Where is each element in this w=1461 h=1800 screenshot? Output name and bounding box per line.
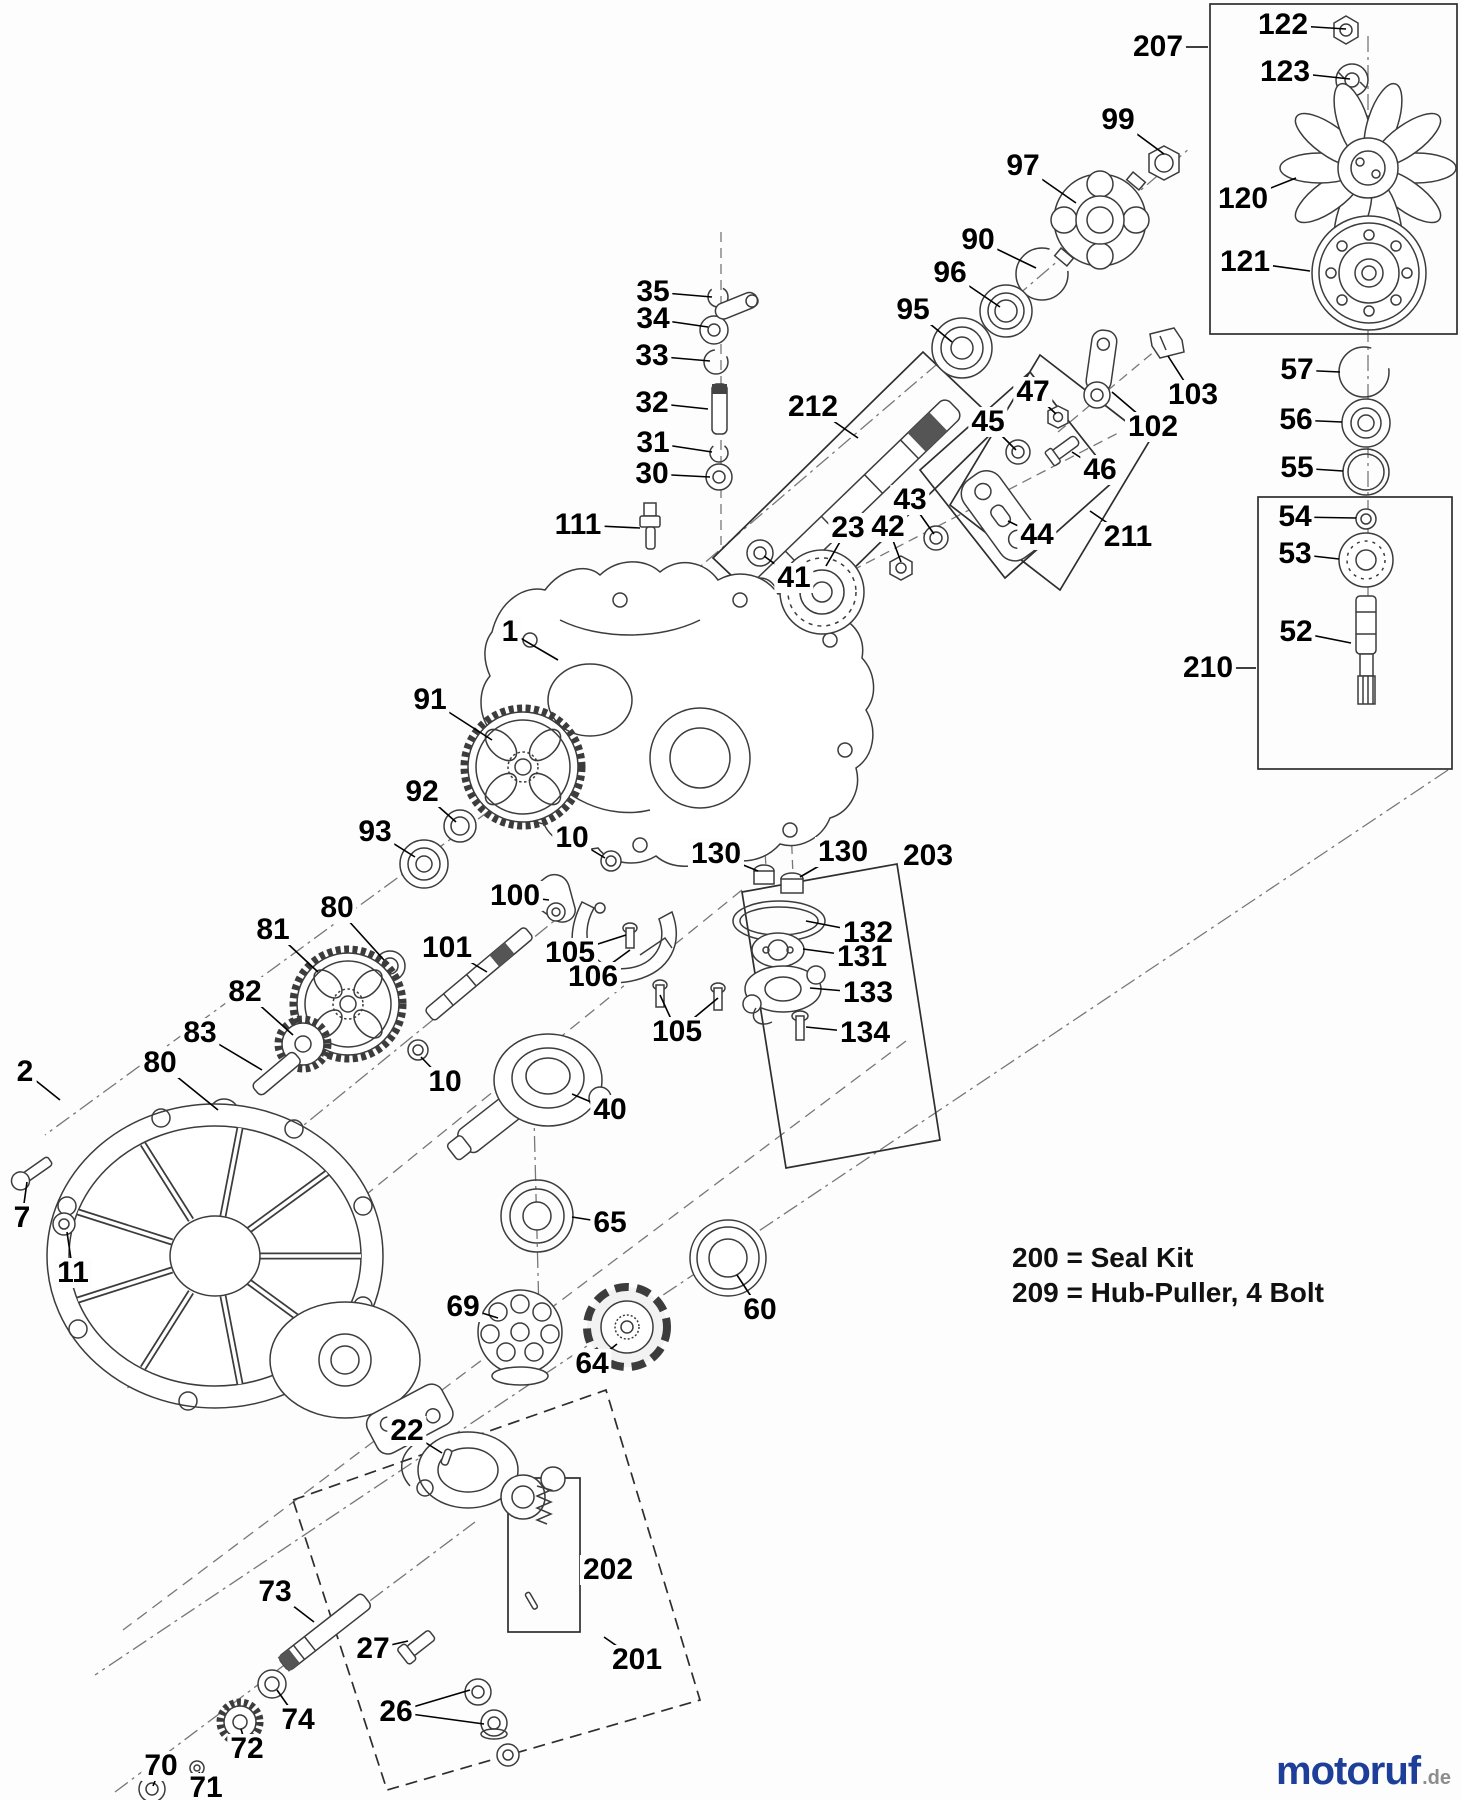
callout-33-31: 33	[632, 341, 671, 371]
callout-56-12: 56	[1276, 405, 1315, 435]
callout-106-46: 106	[565, 962, 621, 992]
callout-95-9: 95	[893, 295, 932, 325]
callout-111-35: 111	[552, 510, 605, 540]
callout-41-28: 41	[774, 563, 813, 593]
callout-73-70: 73	[255, 1577, 294, 1607]
callout-210-17: 210	[1180, 653, 1236, 683]
callout-57-11: 57	[1277, 355, 1316, 385]
callout-99-5: 99	[1098, 105, 1137, 135]
callout-105-47: 105	[649, 1017, 705, 1047]
callout-103-18: 103	[1165, 380, 1221, 410]
callout-100-43: 100	[487, 881, 543, 911]
callout-26-72: 26	[376, 1697, 415, 1727]
callout-131-49: 131	[834, 942, 890, 972]
callout-202-68: 202	[580, 1555, 636, 1585]
callout-7-59: 7	[11, 1203, 34, 1233]
callout-101-44: 101	[419, 933, 475, 963]
callout-32-32: 32	[632, 388, 671, 418]
callout-72-75: 72	[227, 1734, 266, 1764]
callout-83-56: 83	[180, 1018, 219, 1048]
callout-71-74: 71	[186, 1773, 225, 1800]
callout-47-22: 47	[1013, 377, 1052, 407]
callout-52-16: 52	[1276, 617, 1315, 647]
legend-note-seal-kit: 200 = Seal Kit	[1012, 1240, 1324, 1275]
callout-46-20: 46	[1080, 455, 1119, 485]
legend-notes: 200 = Seal Kit 209 = Hub-Puller, 4 Bolt	[1012, 1240, 1324, 1310]
callout-211-21: 211	[1101, 522, 1155, 552]
callout-80-57: 80	[140, 1048, 179, 1078]
callout-34-30: 34	[633, 304, 672, 334]
callout-42-26: 42	[868, 512, 907, 542]
legend-note-hub-puller: 209 = Hub-Puller, 4 Bolt	[1012, 1275, 1324, 1310]
callout-10-40: 10	[552, 823, 591, 853]
callout-203-52: 203	[900, 841, 956, 871]
callout-102-19: 102	[1125, 412, 1181, 442]
callout-10-61: 10	[425, 1067, 464, 1097]
callout-30-34: 30	[632, 459, 671, 489]
callout-130-42: 130	[815, 837, 871, 867]
callout-121-4: 121	[1217, 247, 1273, 277]
callout-96-8: 96	[930, 258, 969, 288]
callout-27-71: 27	[353, 1634, 392, 1664]
callout-44-24: 44	[1017, 520, 1056, 550]
callout-54-14: 54	[1275, 502, 1314, 532]
callout-31-33: 31	[633, 428, 672, 458]
callout-1-36: 1	[499, 617, 522, 647]
watermark-brand: motoruf	[1276, 1749, 1420, 1794]
callout-53-15: 53	[1275, 539, 1314, 569]
callout-201-69: 201	[609, 1645, 665, 1675]
callout-97-6: 97	[1003, 151, 1042, 181]
callout-23-27: 23	[828, 513, 867, 543]
parts-diagram-page: 1221232071201219997909695212575655545352…	[0, 0, 1461, 1800]
callout-91-37: 91	[410, 685, 449, 715]
callout-130-41: 130	[688, 839, 744, 869]
callout-123-1: 123	[1257, 57, 1313, 87]
callout-133-50: 133	[840, 978, 896, 1008]
callout-69-65: 69	[443, 1292, 482, 1322]
callout-207-2: 207	[1130, 32, 1186, 62]
callout-81-53: 81	[253, 915, 292, 945]
callout-92-38: 92	[402, 777, 441, 807]
callout-90-7: 90	[958, 225, 997, 255]
callout-2-58: 2	[14, 1057, 37, 1087]
callout-65-63: 65	[590, 1208, 629, 1238]
watermark-tld: .de	[1422, 1767, 1451, 1790]
callout-22-67: 22	[387, 1416, 426, 1446]
callout-74-76: 74	[278, 1705, 317, 1735]
callout-45-23: 45	[968, 407, 1007, 437]
watermark: motoruf .de	[1276, 1749, 1451, 1794]
callout-80-54: 80	[317, 893, 356, 923]
callout-212-10: 212	[785, 392, 841, 422]
callout-40-62: 40	[590, 1095, 629, 1125]
callout-120-3: 120	[1215, 184, 1271, 214]
callout-93-39: 93	[355, 817, 394, 847]
callout-122-0: 122	[1255, 10, 1311, 40]
callout-60-64: 60	[740, 1295, 779, 1325]
callout-70-73: 70	[141, 1751, 180, 1781]
callout-11-60: 11	[54, 1258, 92, 1288]
callout-82-55: 82	[225, 977, 264, 1007]
callout-64-66: 64	[572, 1349, 611, 1379]
callout-55-13: 55	[1277, 453, 1316, 483]
callout-134-51: 134	[837, 1018, 893, 1048]
